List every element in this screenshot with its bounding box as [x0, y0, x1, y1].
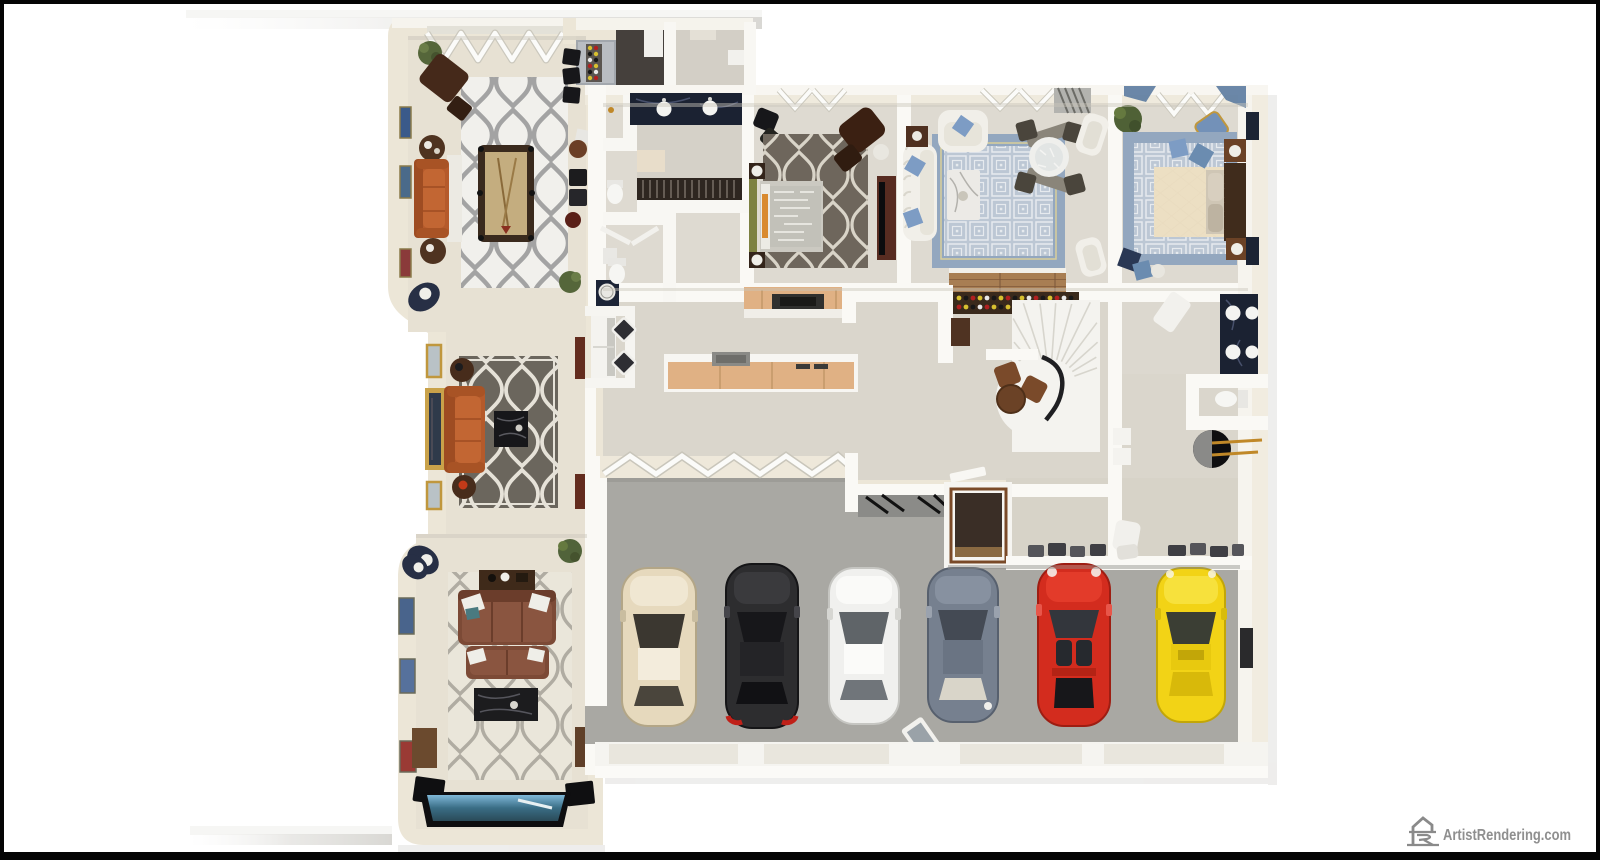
svg-text:ArtistRendering.com: ArtistRendering.com	[1443, 827, 1571, 844]
